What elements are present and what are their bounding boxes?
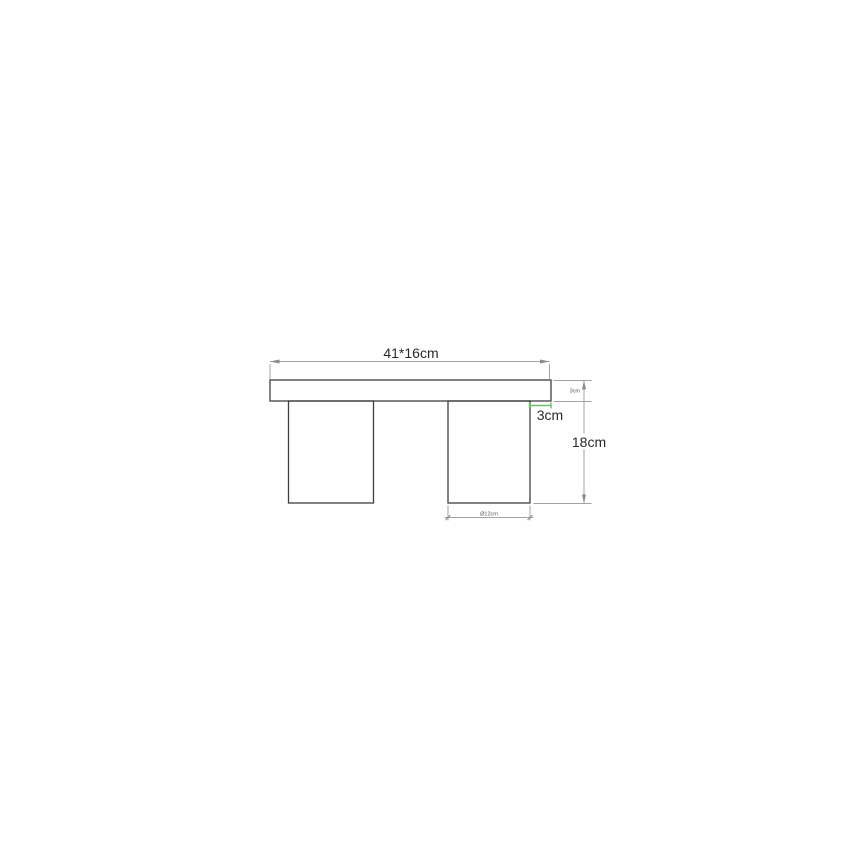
drawing-page: 41*16cm 3cm 3cm 18cm xyxy=(0,0,868,868)
dimension-top-length: 41*16cm xyxy=(270,345,550,379)
top-thickness-label: 3cm xyxy=(570,389,581,395)
dimension-overhang: 3cm xyxy=(530,403,564,424)
arrow-left-icon xyxy=(270,360,280,364)
dimension-right-side: 3cm 18cm xyxy=(534,381,608,504)
bench-elevation xyxy=(270,380,551,503)
left-leg xyxy=(289,401,374,503)
dimension-leg-width: Ø12cm xyxy=(445,506,534,521)
leg-width-label: Ø12cm xyxy=(480,512,498,518)
arrow-up-icon xyxy=(582,381,586,390)
table-top xyxy=(270,380,551,401)
top-length-label: 41*16cm xyxy=(383,345,438,361)
arrow-right-icon xyxy=(540,360,550,364)
total-height-label: 18cm xyxy=(572,434,606,450)
right-leg xyxy=(448,401,530,503)
arrow-down-icon xyxy=(582,495,586,504)
technical-drawing-canvas: 41*16cm 3cm 3cm 18cm xyxy=(0,0,868,868)
overhang-label: 3cm xyxy=(537,407,563,423)
